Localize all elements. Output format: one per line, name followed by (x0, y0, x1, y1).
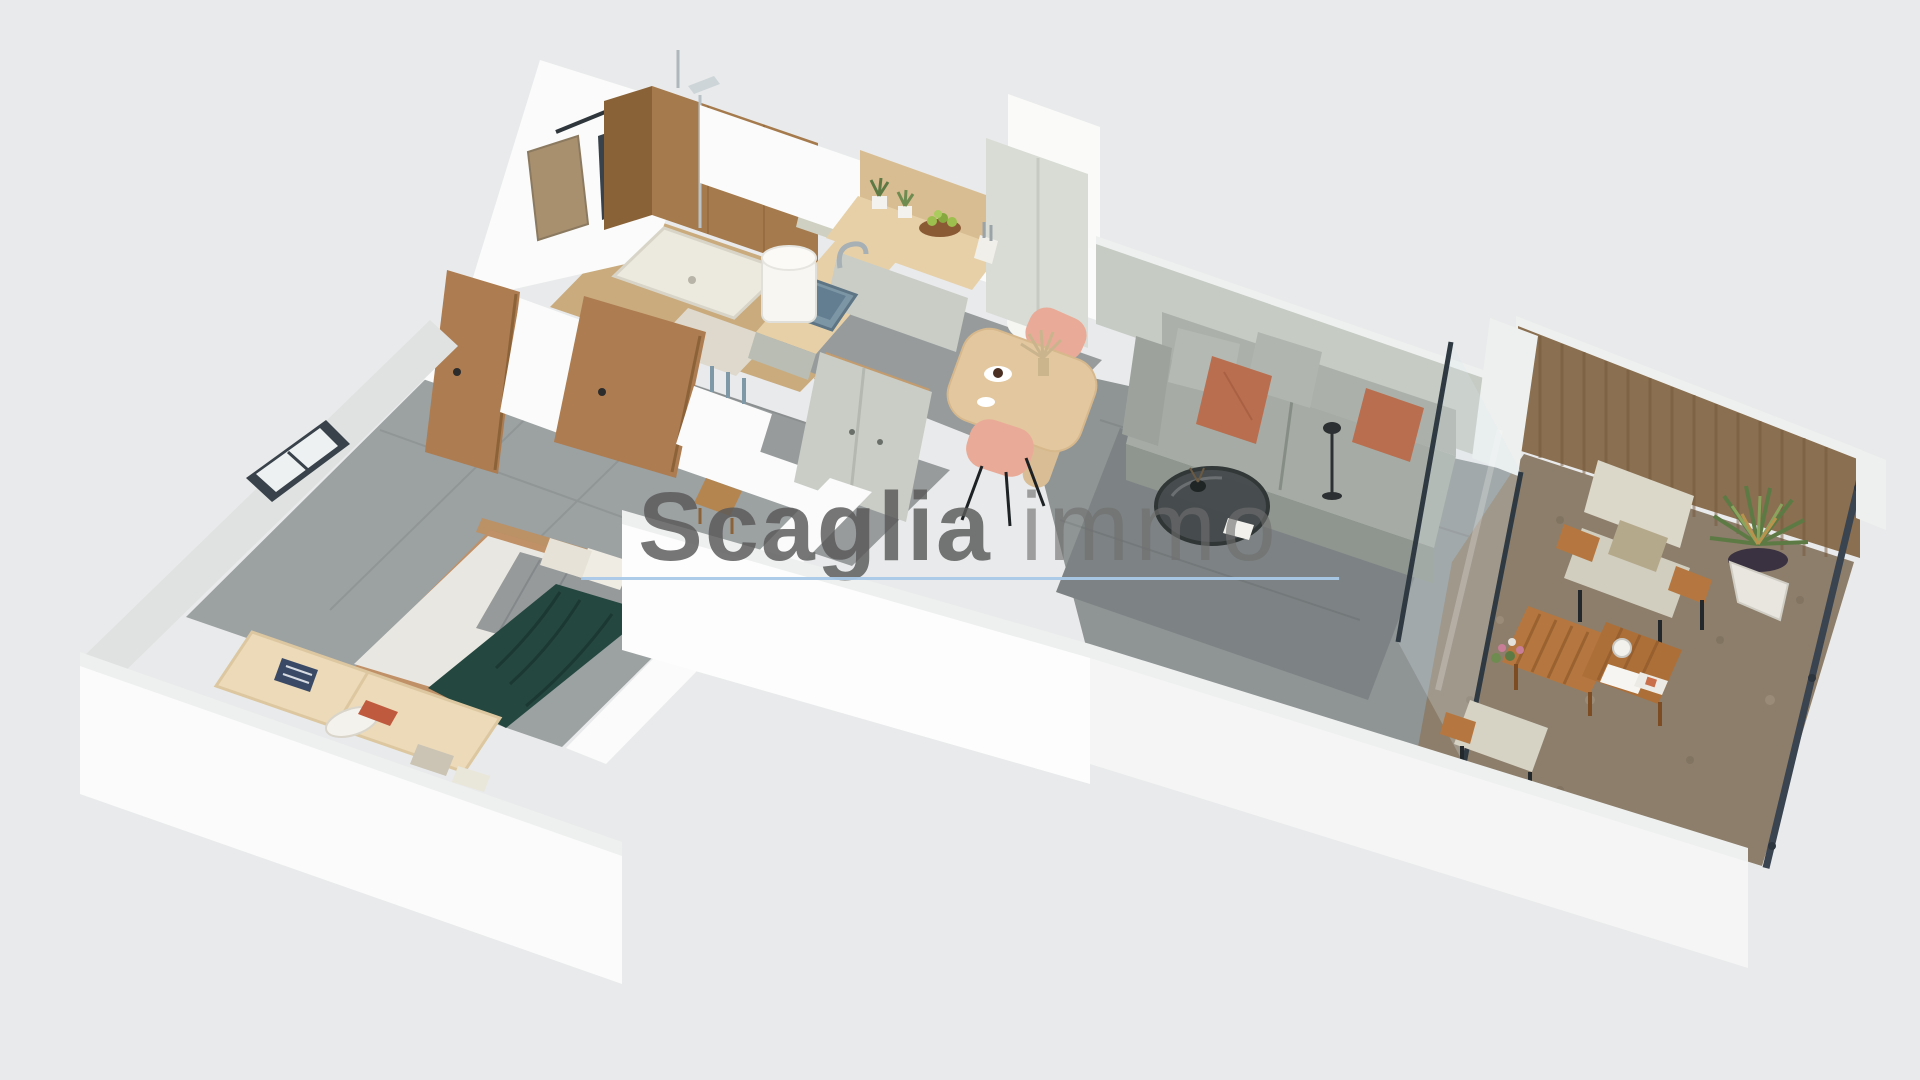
coffee-cup (977, 397, 995, 407)
floor-plan-render (0, 0, 1920, 1080)
railing-post (1808, 674, 1816, 682)
coffee-table (1156, 468, 1268, 544)
terrace-right-wall (1856, 448, 1886, 530)
ball-lamp (1613, 639, 1631, 657)
shower-wall-left (604, 86, 652, 230)
floor-plan-scene: Scaglia immo (0, 0, 1920, 1080)
shower-head (688, 76, 720, 94)
wardrobe-knob (877, 439, 883, 445)
mirror (528, 136, 588, 240)
vase (1038, 358, 1049, 376)
shower-drain (688, 276, 696, 284)
brownie (993, 368, 1003, 378)
bathroom-door-handle (598, 388, 606, 396)
railing-post (1768, 842, 1776, 850)
entry-door-handle (453, 368, 461, 376)
pot (872, 196, 887, 209)
mid-front-wall (622, 524, 1090, 784)
pot (898, 206, 912, 218)
water-heater (762, 246, 816, 322)
wardrobe-knob (849, 429, 855, 435)
